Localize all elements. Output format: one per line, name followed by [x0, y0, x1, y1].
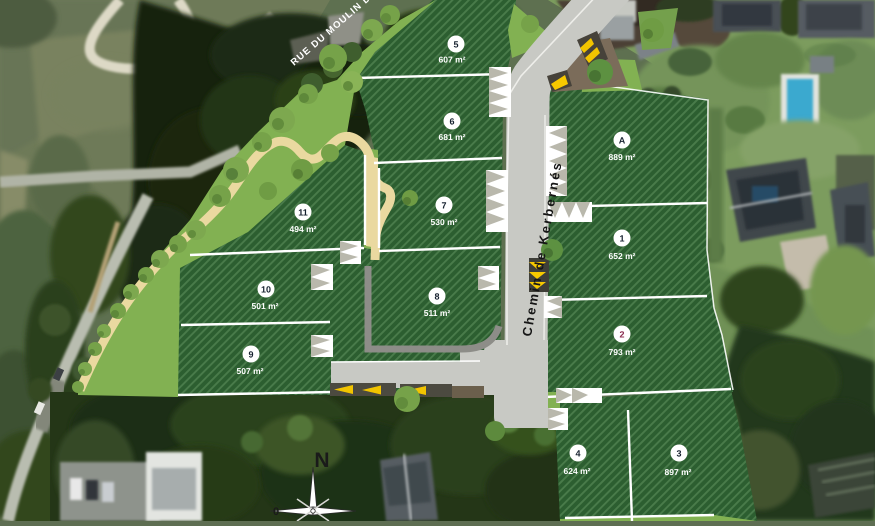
svg-text:1: 1: [619, 234, 624, 244]
svg-text:11: 11: [298, 208, 308, 218]
svg-text:624 m²: 624 m²: [564, 466, 591, 476]
svg-text:4: 4: [575, 449, 580, 459]
svg-text:494 m²: 494 m²: [290, 224, 317, 234]
svg-text:7: 7: [441, 201, 446, 211]
svg-text:652 m²: 652 m²: [609, 251, 636, 261]
svg-text:3: 3: [676, 449, 681, 459]
svg-text:2: 2: [619, 330, 624, 340]
svg-text:5: 5: [453, 40, 458, 50]
svg-text:9: 9: [248, 350, 253, 360]
svg-text:889 m²: 889 m²: [609, 152, 636, 162]
svg-text:897 m²: 897 m²: [665, 467, 692, 477]
svg-text:793 m²: 793 m²: [609, 347, 636, 357]
svg-text:681 m²: 681 m²: [439, 132, 466, 142]
svg-text:607 m²: 607 m²: [439, 55, 466, 65]
svg-text:N: N: [314, 449, 329, 472]
svg-text:530 m²: 530 m²: [431, 217, 458, 227]
svg-text:507 m²: 507 m²: [237, 366, 264, 376]
svg-text:A: A: [619, 136, 626, 146]
svg-text:10: 10: [261, 285, 271, 295]
svg-text:0: 0: [273, 506, 279, 518]
svg-text:511 m²: 511 m²: [424, 308, 451, 318]
svg-text:501 m²: 501 m²: [252, 301, 279, 311]
svg-text:8: 8: [434, 292, 439, 302]
svg-text:6: 6: [449, 117, 454, 127]
